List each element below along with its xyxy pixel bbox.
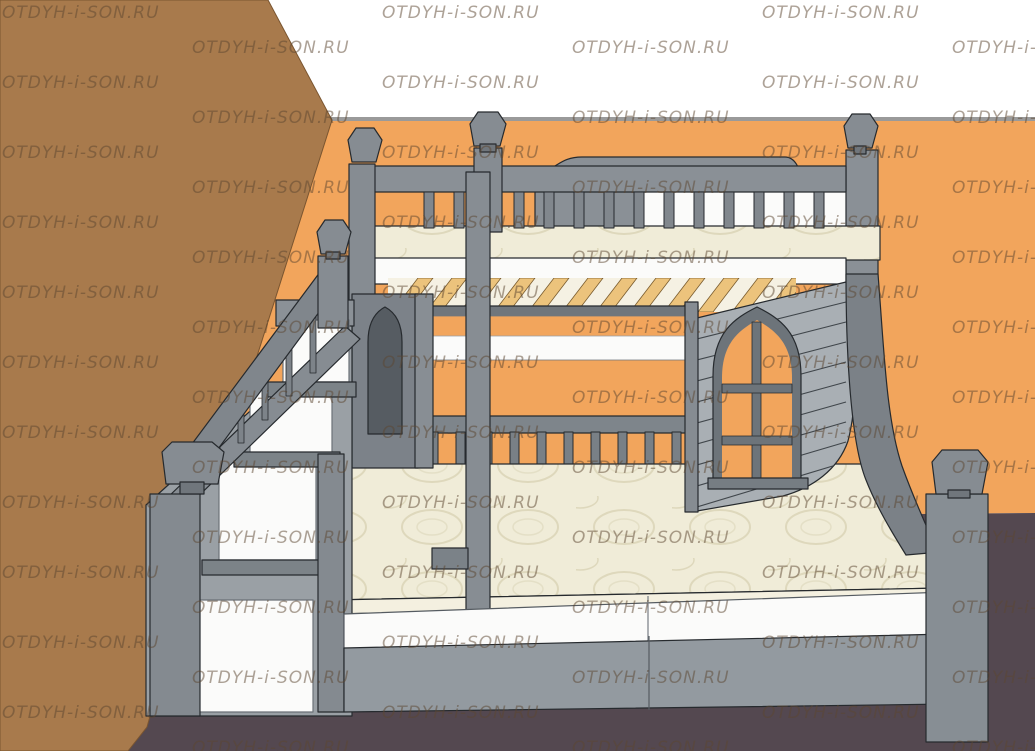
stair-tread: [202, 560, 336, 575]
watermark-text: OTDYH-i-SON.RU: [762, 213, 920, 233]
watermark-text: OTDYH-i-SON.RU: [572, 458, 730, 478]
watermark-text: OTDYH-i-SON.RU: [2, 633, 160, 653]
watermark-text: OTDYH-i-SON.RU: [572, 738, 730, 751]
watermark-text: OTDYH-i-SON.RU: [382, 3, 540, 23]
watermark-text: OTDYH-i-SON.RU: [762, 3, 920, 23]
window-vertical-muntin: [752, 322, 761, 478]
watermark-text: OTDYH-i-SON.RU: [952, 388, 1035, 408]
watermark-text: OTDYH-i-SON.RU: [952, 738, 1035, 751]
watermark-text: OTDYH-i-SON.RU: [952, 38, 1035, 58]
watermark-text: OTDYH-i-SON.RU: [2, 3, 160, 23]
watermark-text: OTDYH-i-SON.RU: [382, 703, 540, 723]
watermark-text: OTDYH-i-SON.RU: [952, 528, 1035, 548]
watermark-text: OTDYH-i-SON.RU: [192, 178, 350, 198]
watermark-text: OTDYH-i-SON.RU: [952, 178, 1035, 198]
watermark-text: OTDYH-i-SON.RU: [192, 528, 350, 548]
watermark-text: OTDYH-i-SON.RU: [952, 318, 1035, 338]
watermark-text: OTDYH-i-SON.RU: [572, 528, 730, 548]
watermark-text: OTDYH-i-SON.RU: [762, 423, 920, 443]
watermark-text: OTDYH-i-SON.RU: [952, 248, 1035, 268]
product-render-scene: OTDYH-i-SON.RUOTDYH-i-SON.RUOTDYH-i-SON.…: [0, 0, 1035, 751]
bed-corner-finial: [348, 128, 382, 162]
watermark-text: OTDYH-i-SON.RU: [2, 283, 160, 303]
watermark-text: OTDYH-i-SON.RU: [192, 248, 350, 268]
watermark-text: OTDYH-i-SON.RU: [2, 353, 160, 373]
watermark-text: OTDYH-i-SON.RU: [762, 493, 920, 513]
watermark-text: OTDYH-i-SON.RU: [762, 143, 920, 163]
watermark-text: OTDYH-i-SON.RU: [572, 388, 730, 408]
watermark-text: OTDYH-i-SON.RU: [382, 493, 540, 513]
watermark-text: OTDYH-i-SON.RU: [952, 108, 1035, 128]
watermark-text: OTDYH-i-SON.RU: [382, 283, 540, 303]
watermark-text: OTDYH-i-SON.RU: [2, 143, 160, 163]
watermark-text: OTDYH-i-SON.RU: [952, 458, 1035, 478]
watermark-text: OTDYH-i-SON.RU: [2, 493, 160, 513]
watermark-text: OTDYH-i-SON.RU: [192, 738, 350, 751]
watermark-text: OTDYH-i-SON.RU: [762, 633, 920, 653]
watermark-text: OTDYH-i-SON.RU: [952, 668, 1035, 688]
watermark-text: OTDYH-i-SON.RU: [952, 598, 1035, 618]
watermark-text: OTDYH-i-SON.RU: [192, 598, 350, 618]
watermark-text: OTDYH-i-SON.RU: [192, 668, 350, 688]
watermark-text: OTDYH-i-SON.RU: [762, 563, 920, 583]
watermark-text: OTDYH-i-SON.RU: [382, 73, 540, 93]
watermark-text: OTDYH-i-SON.RU: [762, 283, 920, 303]
watermark-text: OTDYH-i-SON.RU: [572, 318, 730, 338]
watermark-text: OTDYH-i-SON.RU: [572, 178, 730, 198]
watermark-text: OTDYH-i-SON.RU: [192, 388, 350, 408]
bed-corner-post: [349, 164, 375, 308]
watermark-text: OTDYH-i-SON.RU: [2, 73, 160, 93]
watermark-text: OTDYH-i-SON.RU: [382, 423, 540, 443]
window-sill: [708, 478, 808, 489]
watermark-text: OTDYH-i-SON.RU: [2, 213, 160, 233]
watermark-text: OTDYH-i-SON.RU: [382, 633, 540, 653]
watermark-text: OTDYH-i-SON.RU: [382, 563, 540, 583]
watermark-text: OTDYH-i-SON.RU: [762, 73, 920, 93]
watermark-text: OTDYH-i-SON.RU: [192, 318, 350, 338]
watermark-text: OTDYH-i-SON.RU: [762, 353, 920, 373]
watermark-text: OTDYH-i-SON.RU: [382, 353, 540, 373]
watermark-text: OTDYH-i-SON.RU: [572, 38, 730, 58]
window-horizontal-muntin: [722, 384, 792, 393]
watermark-text: OTDYH-i-SON.RU: [382, 143, 540, 163]
watermark-text: OTDYH-i-SON.RU: [382, 213, 540, 233]
watermark-text: OTDYH-i-SON.RU: [762, 703, 920, 723]
watermark-text: OTDYH-i-SON.RU: [192, 108, 350, 128]
ladder-rail: [466, 172, 490, 610]
upper-rail-baluster: [544, 192, 554, 228]
watermark-text: OTDYH-i-SON.RU: [2, 423, 160, 443]
watermark-text: OTDYH-i-SON.RU: [572, 108, 730, 128]
watermark-text: OTDYH-i-SON.RU: [572, 668, 730, 688]
bunk-bed-render: OTDYH-i-SON.RUOTDYH-i-SON.RUOTDYH-i-SON.…: [0, 0, 1035, 751]
watermark-text: OTDYH-i-SON.RU: [2, 563, 160, 583]
watermark-text: OTDYH-i-SON.RU: [192, 38, 350, 58]
watermark-text: OTDYH-i-SON.RU: [572, 248, 730, 268]
watermark-text: OTDYH-i-SON.RU: [2, 703, 160, 723]
watermark-text: OTDYH-i-SON.RU: [572, 598, 730, 618]
watermark-text: OTDYH-i-SON.RU: [192, 458, 350, 478]
